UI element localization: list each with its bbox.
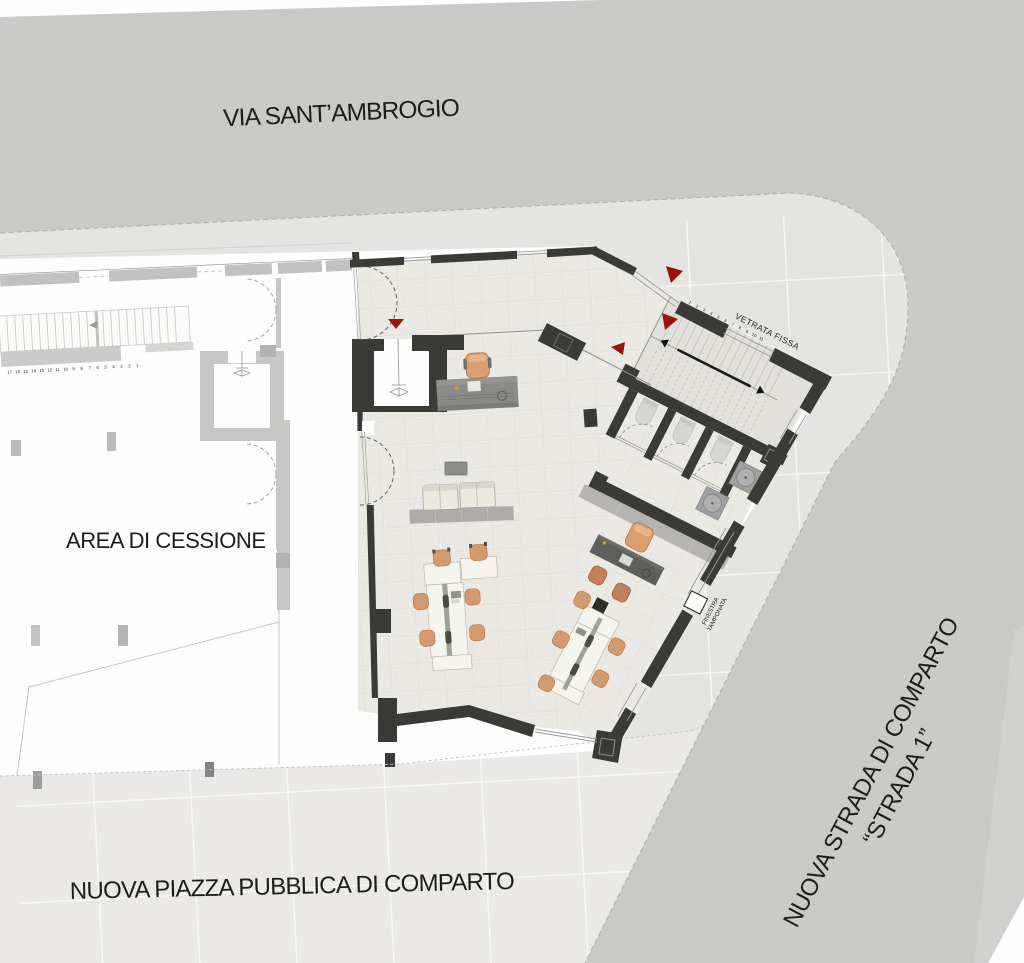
svg-text:AREA DI CESSIONE: AREA DI CESSIONE: [66, 528, 266, 553]
